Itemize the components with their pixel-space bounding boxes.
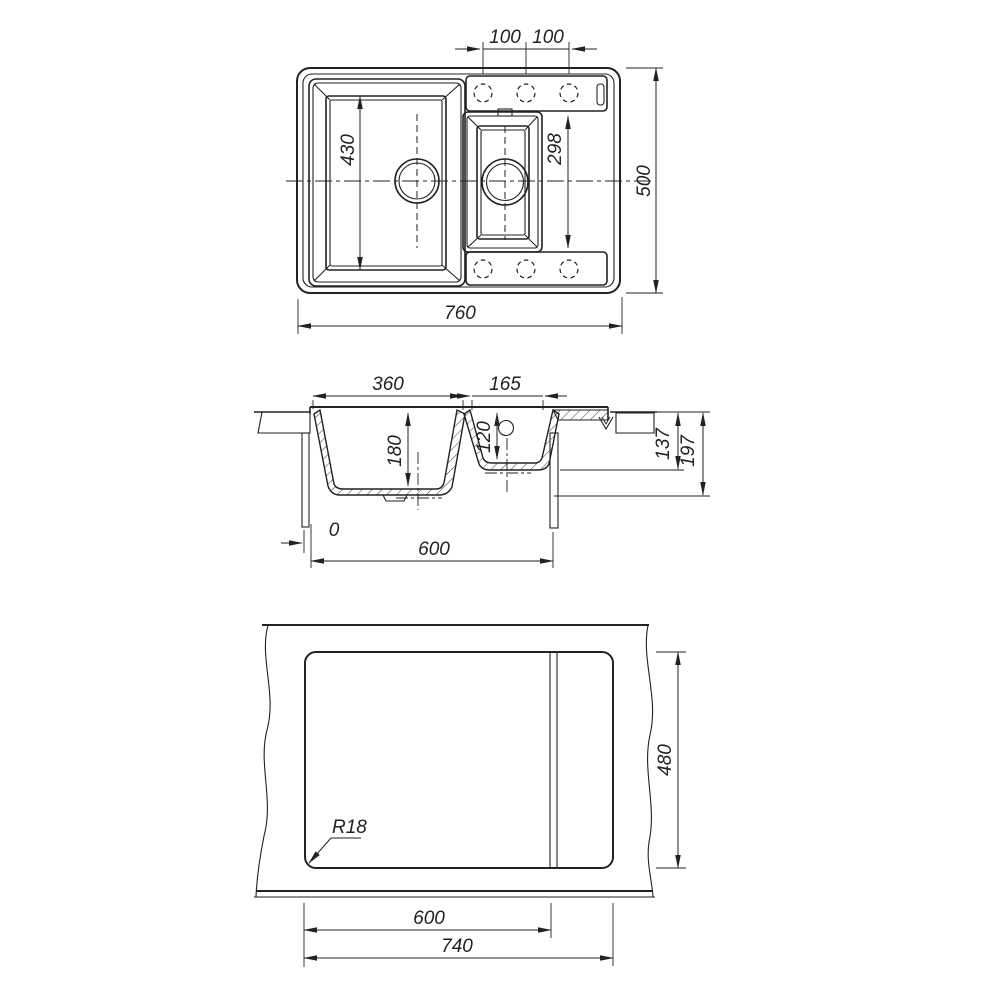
dim-cutout-total-width: 740 [304, 903, 613, 966]
bevel-corner-line [314, 84, 330, 100]
main-bowl-floor-fillet [330, 100, 442, 266]
dim-label-600-cutout: 600 [413, 908, 445, 929]
dim-cabinet-width: 600 [311, 532, 553, 568]
dim-label-600-section: 600 [418, 539, 450, 560]
leader-line [309, 838, 331, 863]
dim-label-120: 120 [474, 421, 495, 453]
tap-ledge-bottom [466, 252, 607, 285]
dim-label-500: 500 [634, 165, 655, 197]
dim-label-100-left: 100 [489, 27, 521, 48]
bevel-corner-line [442, 265, 460, 281]
label-corner-radius: R18 [332, 817, 367, 838]
sink-technical-drawing: 100 100 760 500 430 298 [0, 0, 1000, 1000]
drainboard-section [553, 410, 608, 420]
dim-label-480: 480 [655, 744, 676, 776]
small-bowl-floor-fillet [481, 130, 525, 235]
bevel-corner-line [442, 84, 460, 100]
dim-overall-width: 760 [298, 297, 622, 334]
main-bowl-floor-edge [326, 96, 446, 270]
worktop-left-section [258, 412, 310, 433]
dim-main-bowl-length: 430 [338, 96, 360, 270]
bevel-corner-line [468, 117, 481, 130]
technical-drawing-page: 100 100 760 500 430 298 [0, 0, 1000, 1000]
dim-label-430: 430 [338, 134, 359, 166]
bevel-corner-line [525, 235, 537, 247]
cutout-view: R18 480 600 740 [254, 625, 686, 967]
tap-hole-knockout [517, 260, 535, 278]
dim-small-bowl-width: 165 [448, 374, 567, 410]
slot-hole [597, 84, 604, 105]
bevel-corner-line [314, 265, 330, 281]
dim-main-section-width: 600 [304, 903, 551, 967]
cabinet-side-left [302, 433, 309, 527]
small-bowl-opening [463, 112, 542, 252]
dim-small-bowl-depth: 120 [474, 413, 497, 459]
dim-label-740: 740 [441, 936, 473, 957]
dim-label-0: 0 [329, 520, 340, 541]
dim-label-137: 137 [653, 427, 674, 460]
overflow-hole [499, 421, 514, 436]
tap-hole-knockout [560, 260, 578, 278]
tap-ledge [466, 76, 607, 111]
dim-label-197: 197 [678, 434, 699, 467]
dim-main-bowl-depth: 180 [385, 413, 408, 486]
section-view: 360 165 180 120 137 197 [254, 374, 710, 568]
dim-overall-height: 197 [554, 413, 710, 496]
corner-radius-callout: R18 [309, 817, 367, 863]
tap-hole-knockout [474, 260, 492, 278]
sink-cross-section [310, 407, 608, 510]
break-line-right [646, 625, 653, 897]
dim-cutout-depth: 480 [655, 652, 686, 868]
dim-label-180: 180 [385, 435, 406, 467]
small-bowl-floor-edge [477, 126, 529, 239]
dim-label-360: 360 [372, 374, 404, 395]
dim-label-760: 760 [444, 303, 476, 324]
tap-ledge-top [466, 76, 607, 111]
tap-hole-knockout [517, 84, 535, 102]
dim-label-298: 298 [545, 133, 566, 166]
dim-overall-depth: 500 [626, 68, 663, 293]
dim-label-165: 165 [489, 374, 521, 395]
tap-hole-knockout [474, 84, 492, 102]
bevel-corner-line [525, 117, 537, 130]
dim-small-bowl-length: 298 [545, 116, 568, 248]
worktop-right-section [616, 413, 654, 433]
dim-main-bowl-width: 360 [313, 374, 463, 410]
dim-label-100-right: 100 [532, 27, 564, 48]
dim-hole-pitch: 100 100 [455, 27, 597, 74]
tap-ledge [466, 252, 607, 285]
break-line-left [256, 625, 270, 897]
plan-view: 100 100 760 500 430 298 [286, 27, 663, 334]
bevel-corner-line [468, 235, 481, 247]
tap-hole-knockout [560, 84, 578, 102]
main-bowl [309, 79, 465, 286]
